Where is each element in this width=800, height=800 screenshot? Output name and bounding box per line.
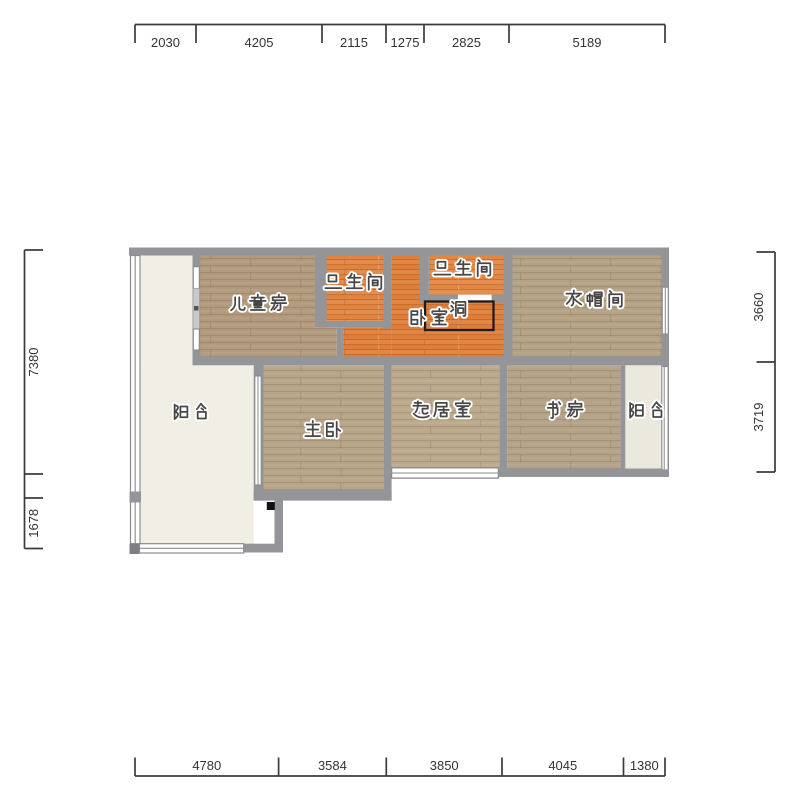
svg-text:7380: 7380 xyxy=(26,348,41,377)
svg-text:2115: 2115 xyxy=(340,35,368,50)
svg-text:4045: 4045 xyxy=(548,758,577,773)
svg-text:2030: 2030 xyxy=(151,35,180,50)
svg-text:3660: 3660 xyxy=(751,293,766,322)
svg-text:1678: 1678 xyxy=(26,509,41,538)
svg-text:4205: 4205 xyxy=(245,35,274,50)
svg-text:3584: 3584 xyxy=(318,758,347,773)
svg-text:3719: 3719 xyxy=(751,403,766,432)
svg-text:2825: 2825 xyxy=(452,35,481,50)
svg-text:4780: 4780 xyxy=(192,758,221,773)
svg-text:3850: 3850 xyxy=(430,758,459,773)
svg-text:1275: 1275 xyxy=(391,35,420,50)
svg-text:1380: 1380 xyxy=(630,758,659,773)
svg-text:5189: 5189 xyxy=(573,35,602,50)
